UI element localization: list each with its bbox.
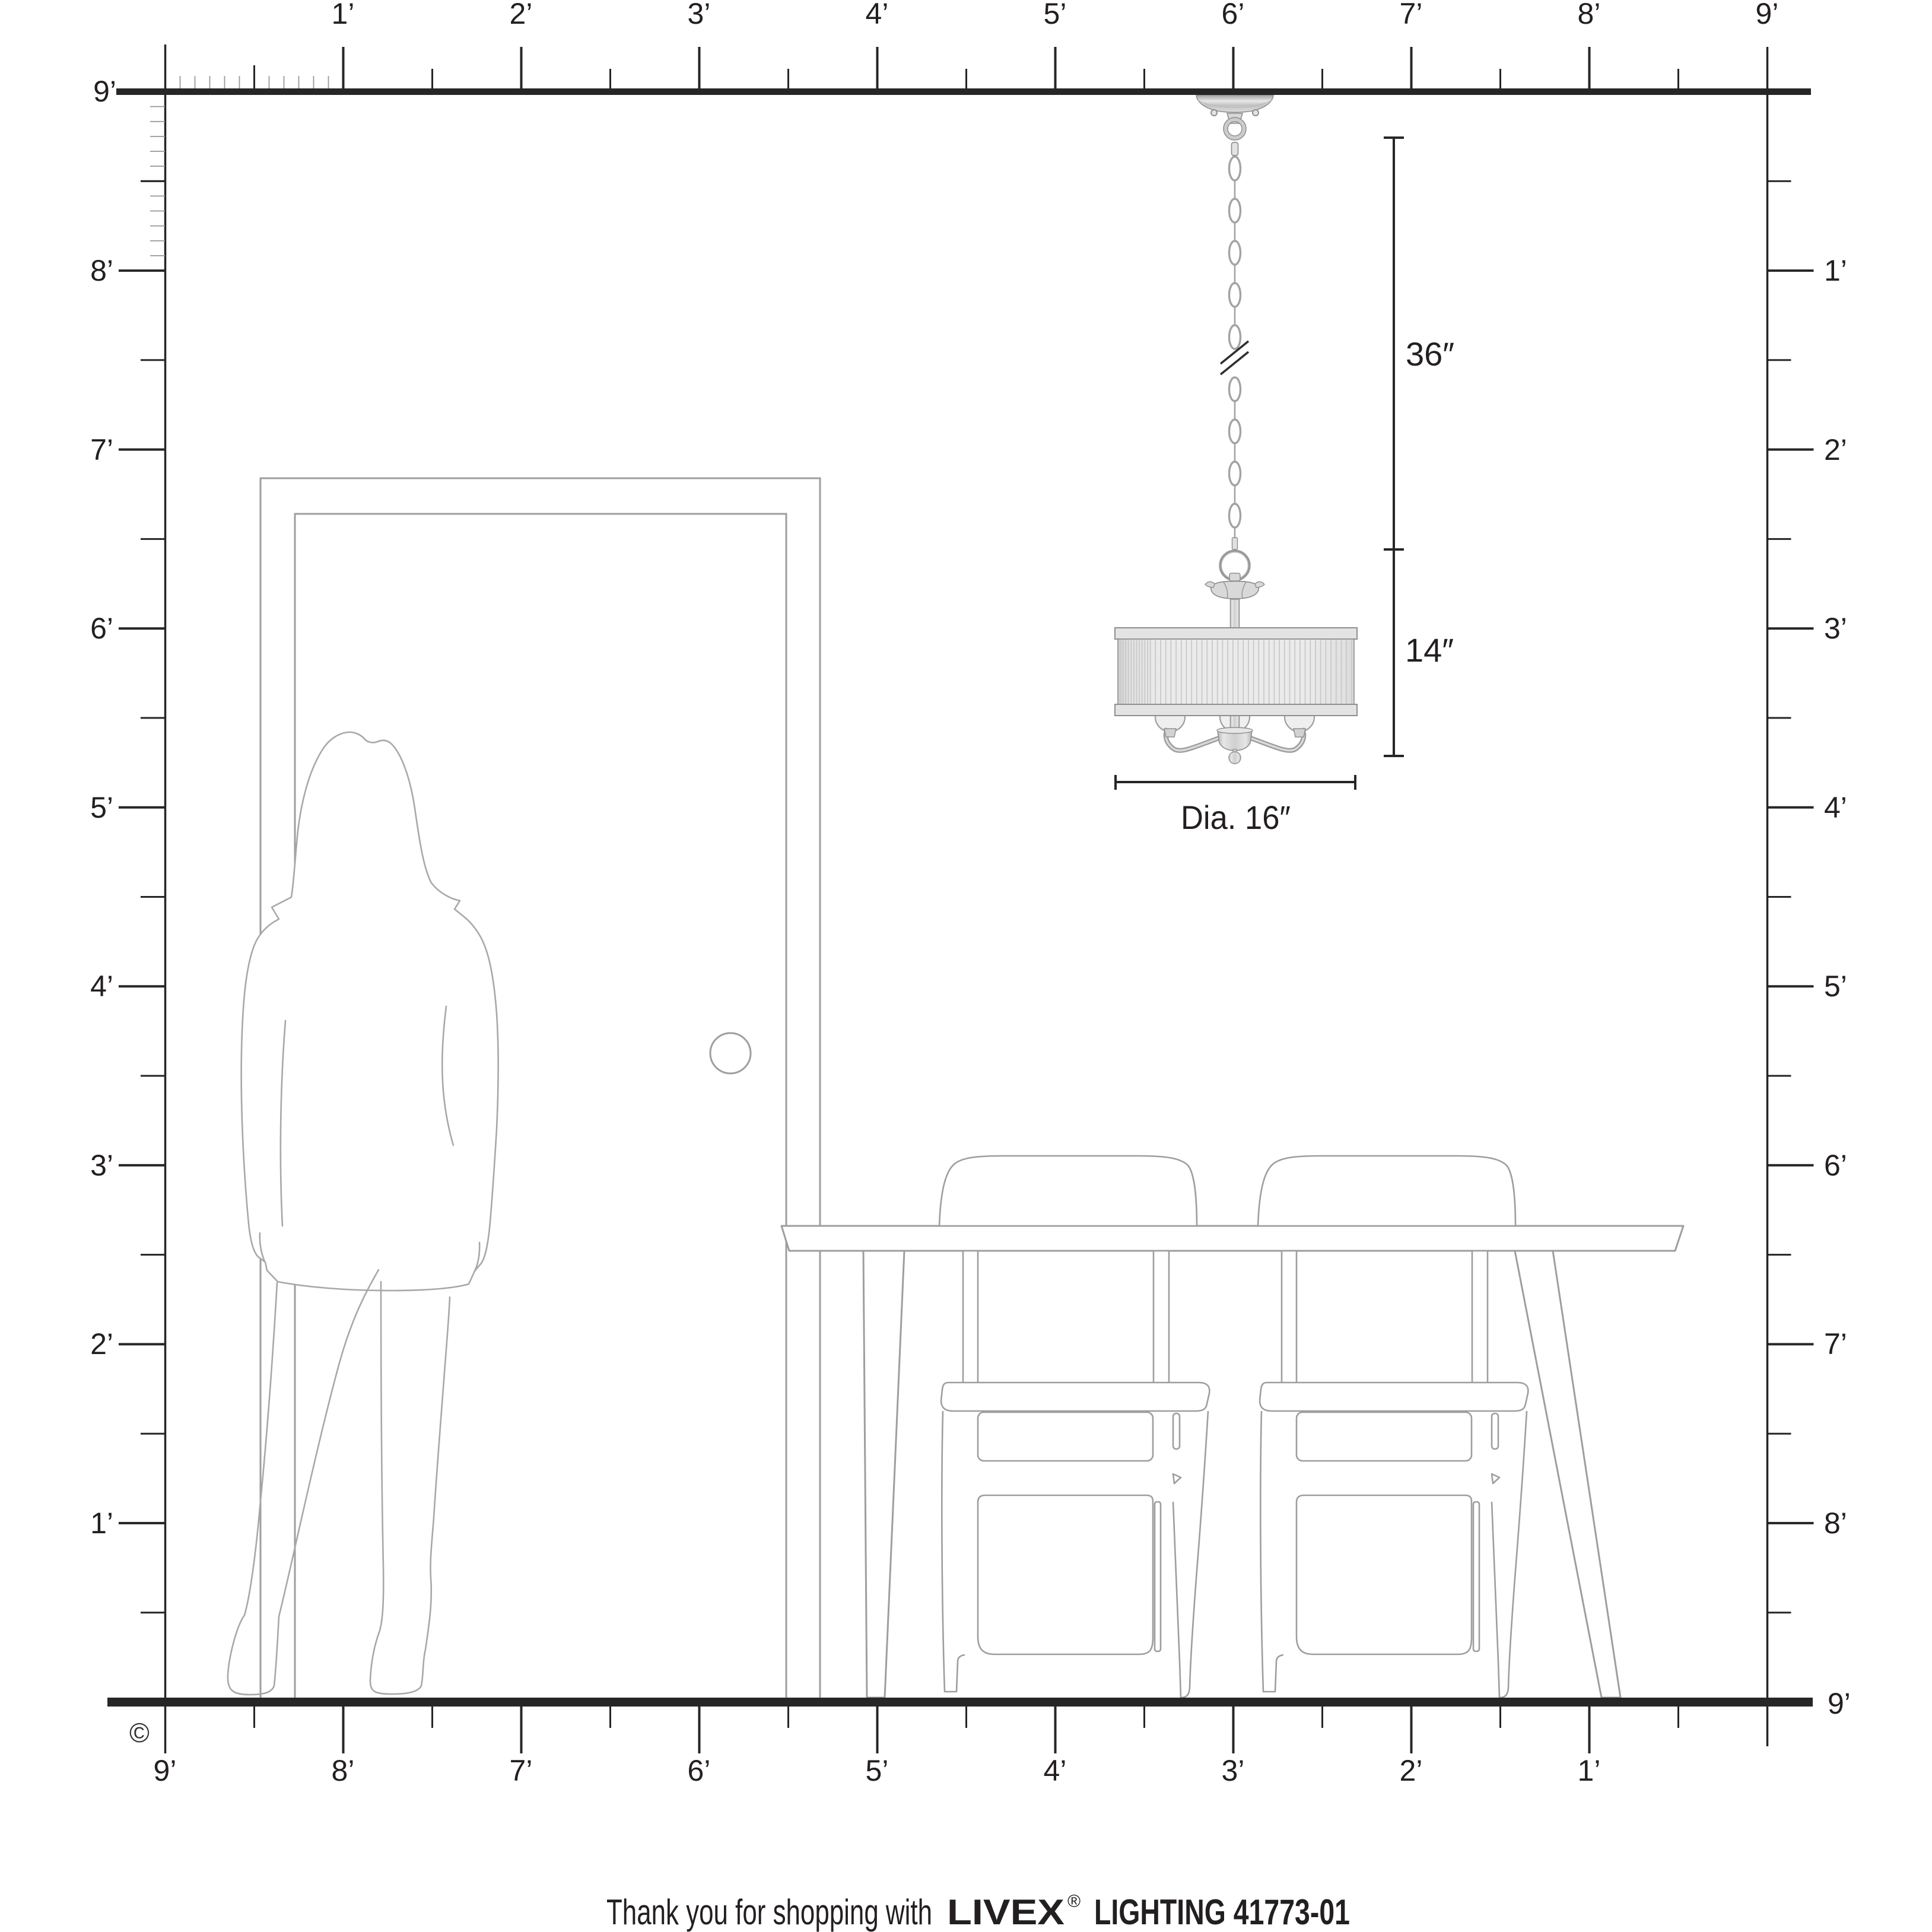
svg-text:2’: 2’ <box>510 0 533 30</box>
svg-text:1’: 1’ <box>1578 1754 1601 1787</box>
svg-text:9’: 9’ <box>1756 0 1779 30</box>
svg-text:3’: 3’ <box>688 0 711 30</box>
svg-text:9’: 9’ <box>154 1754 177 1787</box>
svg-text:1’: 1’ <box>332 0 355 30</box>
svg-text:9’: 9’ <box>1828 1687 1851 1720</box>
svg-text:7’: 7’ <box>1400 0 1423 30</box>
svg-text:LIVEX: LIVEX <box>947 1892 1064 1932</box>
svg-text:36″: 36″ <box>1406 335 1454 373</box>
svg-text:6’: 6’ <box>90 612 113 645</box>
svg-text:4’: 4’ <box>90 970 113 1003</box>
svg-text:Dia. 16″: Dia. 16″ <box>1181 799 1291 836</box>
svg-text:6’: 6’ <box>688 1754 711 1787</box>
svg-text:8’: 8’ <box>90 254 113 287</box>
svg-text:2’: 2’ <box>1824 433 1847 466</box>
svg-text:3’: 3’ <box>90 1149 113 1182</box>
svg-text:7’: 7’ <box>1824 1327 1847 1361</box>
svg-text:Thank you for shopping with: Thank you for shopping with <box>606 1892 932 1932</box>
svg-text:5’: 5’ <box>1044 0 1067 30</box>
svg-text:2’: 2’ <box>1400 1754 1423 1787</box>
svg-text:1’: 1’ <box>1824 254 1847 287</box>
svg-text:4’: 4’ <box>866 0 889 30</box>
svg-text:14″: 14″ <box>1405 631 1454 669</box>
svg-text:7’: 7’ <box>90 433 113 466</box>
svg-text:5’: 5’ <box>1824 970 1847 1003</box>
svg-text:9’: 9’ <box>93 75 116 108</box>
svg-text:4’: 4’ <box>1044 1754 1067 1787</box>
svg-text:2’: 2’ <box>90 1327 113 1361</box>
svg-text:4’: 4’ <box>1824 791 1847 824</box>
svg-text:5’: 5’ <box>866 1754 889 1787</box>
svg-text:3’: 3’ <box>1824 612 1847 645</box>
svg-text:7’: 7’ <box>510 1754 533 1787</box>
svg-text:8’: 8’ <box>1578 0 1601 30</box>
svg-text:LIGHTING 41773-01: LIGHTING 41773-01 <box>1094 1892 1350 1932</box>
svg-text:3’: 3’ <box>1222 1754 1245 1787</box>
svg-text:6’: 6’ <box>1222 0 1245 30</box>
svg-text:8’: 8’ <box>1824 1507 1847 1540</box>
svg-text:6’: 6’ <box>1824 1149 1847 1182</box>
svg-text:8’: 8’ <box>332 1754 355 1787</box>
svg-text:©: © <box>129 1717 150 1748</box>
svg-text:®: ® <box>1067 1892 1081 1911</box>
svg-text:1’: 1’ <box>90 1507 113 1540</box>
svg-text:5’: 5’ <box>90 791 113 824</box>
